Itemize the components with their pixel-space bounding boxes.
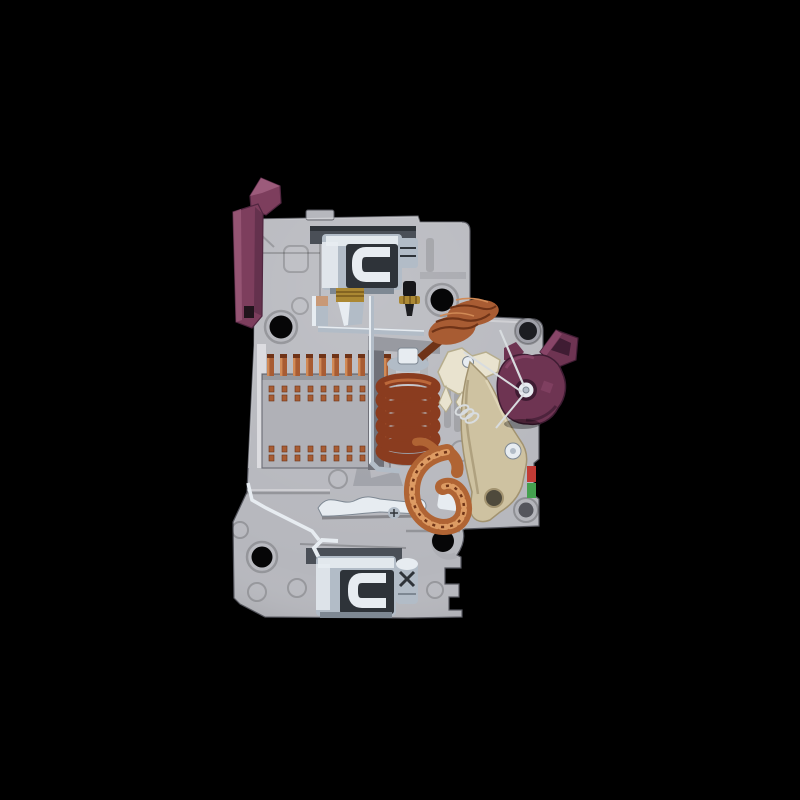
mounting-hole-top-left bbox=[265, 311, 297, 343]
breaker-photo bbox=[0, 0, 800, 800]
indicator-stripes bbox=[527, 466, 536, 498]
breaker-photo-canvas bbox=[0, 0, 800, 800]
top-terminal-screw bbox=[398, 238, 418, 268]
latch-lever-hole bbox=[485, 489, 503, 507]
shaft-hole-right bbox=[515, 318, 541, 344]
bottom-terminal-screw bbox=[396, 558, 418, 604]
solenoid-cap-screw bbox=[398, 348, 418, 364]
indicator-red bbox=[527, 466, 536, 482]
toggle-slot-shadow bbox=[244, 306, 254, 318]
indicator-green bbox=[527, 483, 536, 498]
pivot-hole-lower-right bbox=[514, 498, 538, 522]
mounting-hole-bottom-left bbox=[247, 542, 277, 572]
